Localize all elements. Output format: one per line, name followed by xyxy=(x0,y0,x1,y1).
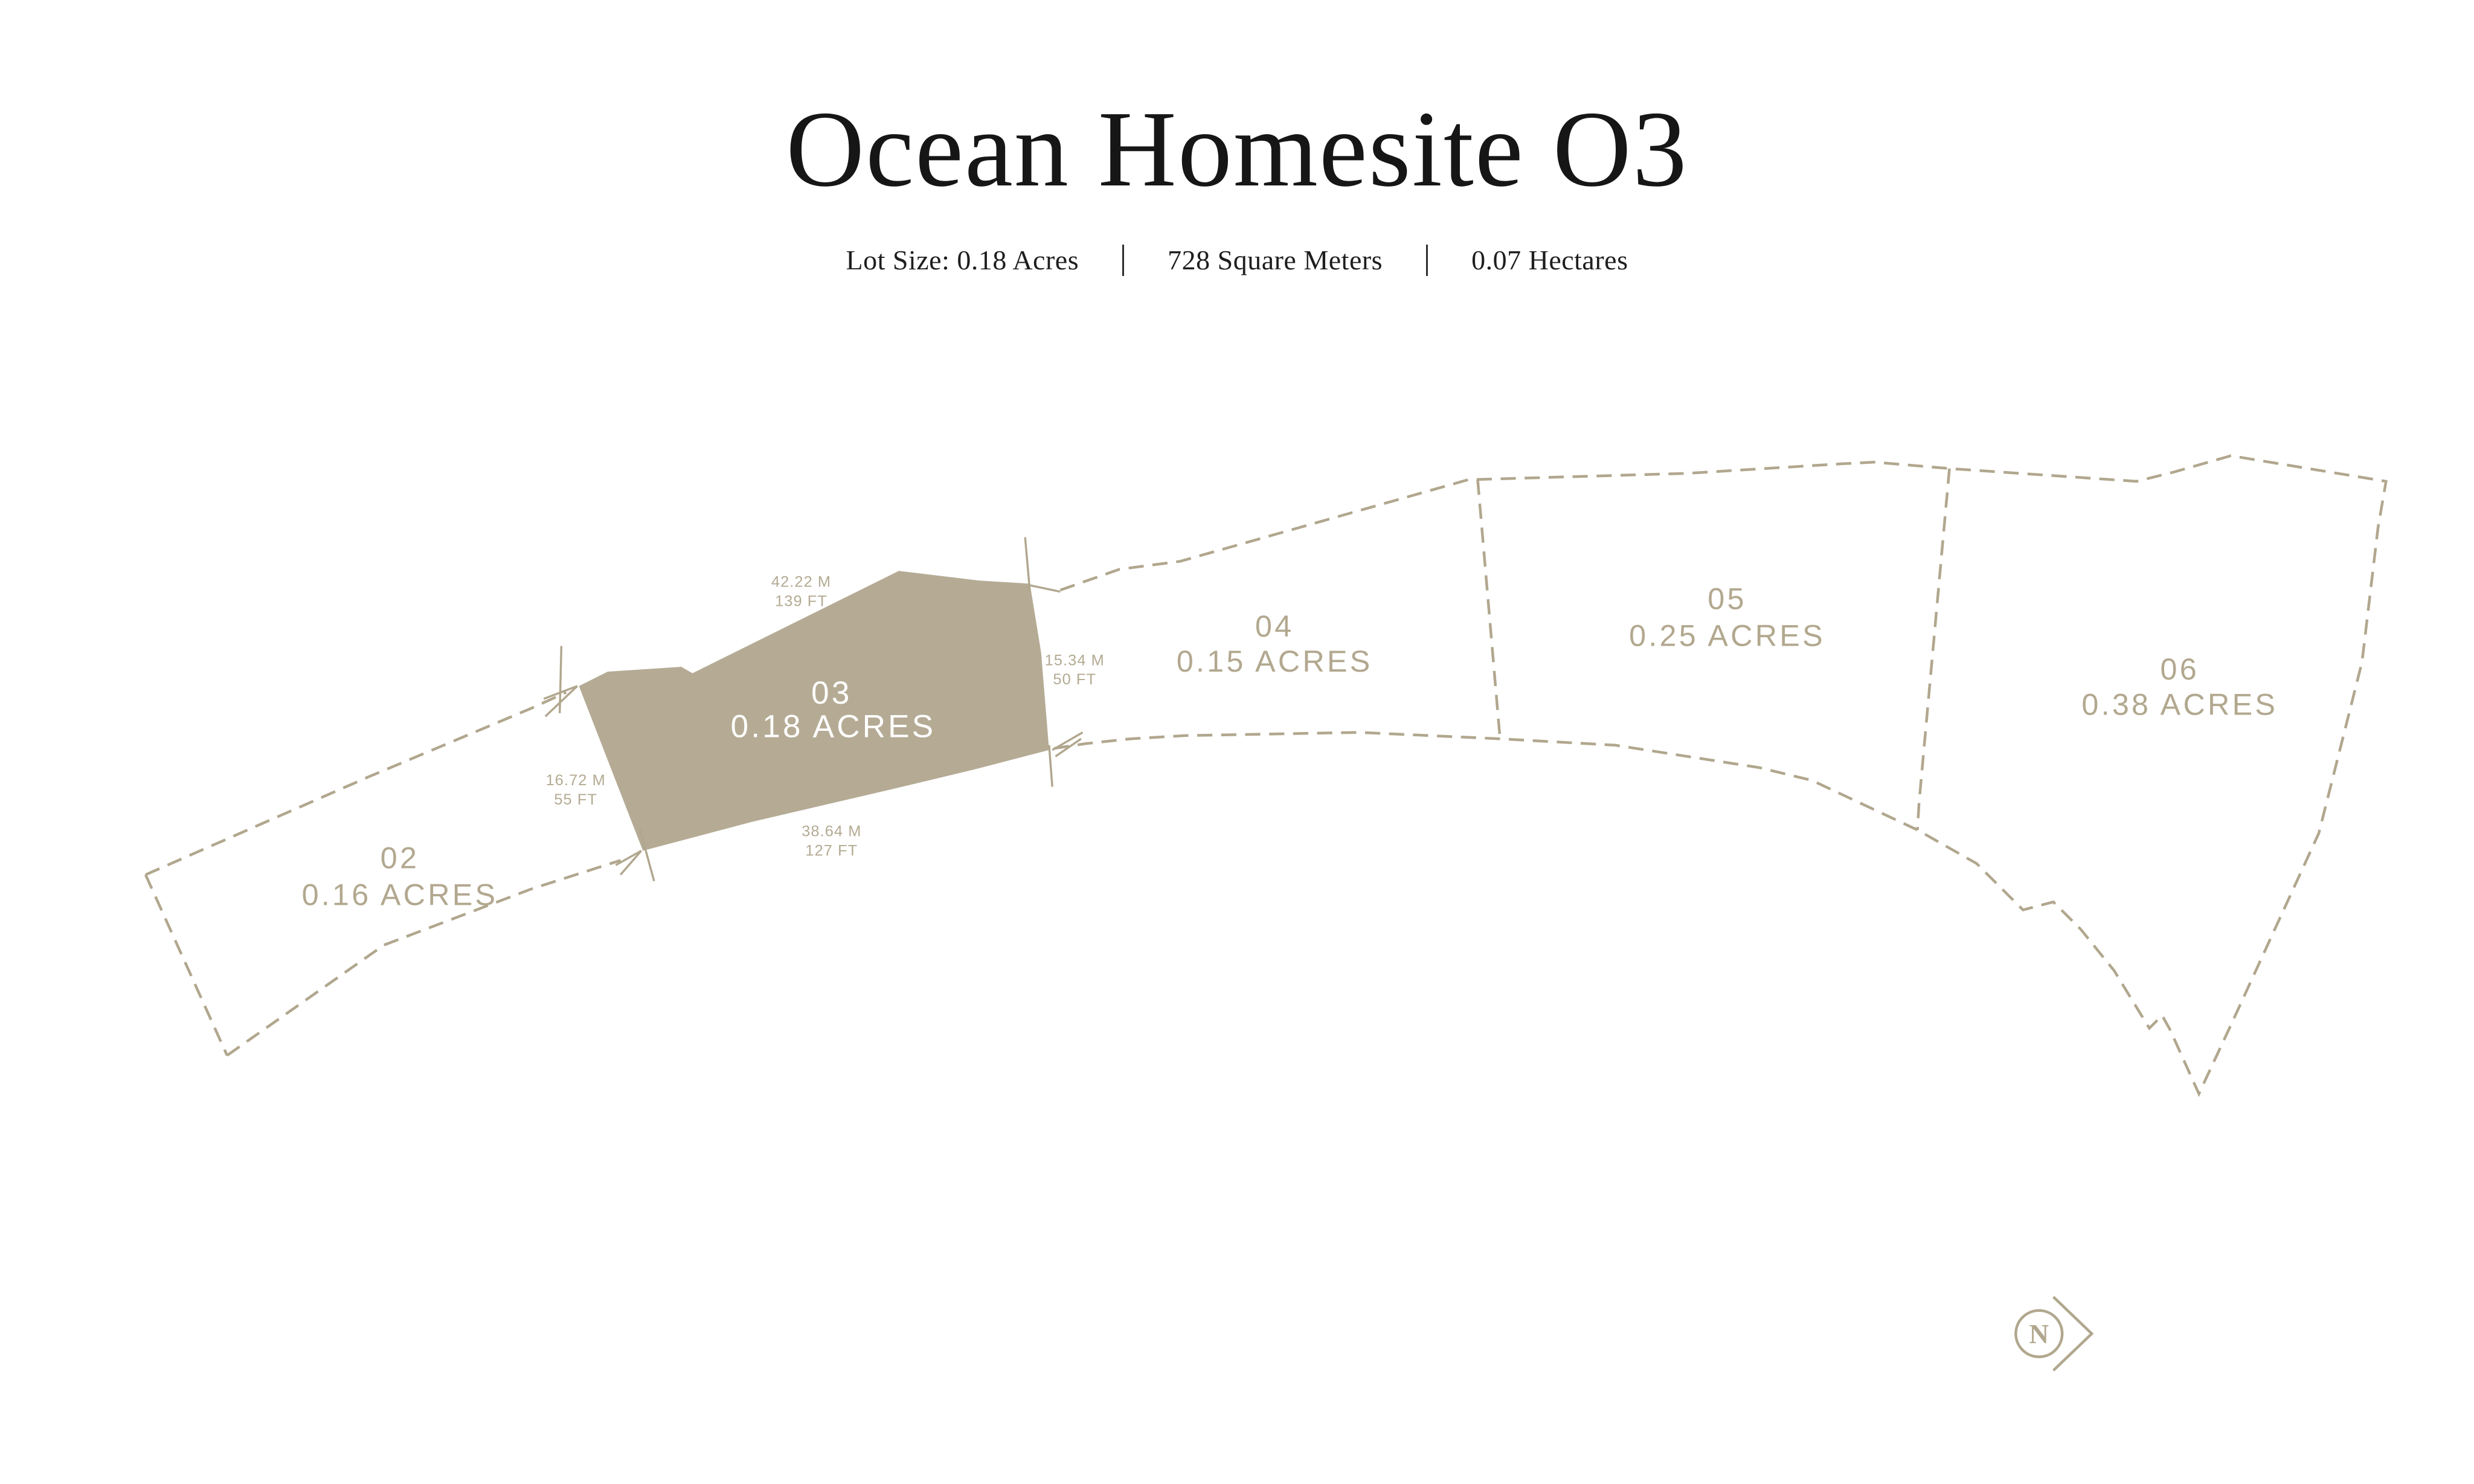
lot-area: 0.25 ACRES xyxy=(1629,618,1825,653)
measurement-metric: 38.64 M xyxy=(802,823,861,840)
lot-number: 03 xyxy=(811,675,852,711)
measurement-imperial: 50 FT xyxy=(1053,671,1096,688)
north-indicator: N xyxy=(2016,1297,2092,1370)
header: Ocean Homesite O3 Lot Size: 0.18 Acres 7… xyxy=(0,89,2474,276)
lot-number: 06 xyxy=(2161,652,2199,686)
stat-hectares: 0.07 Hectares xyxy=(1471,244,1628,276)
divider-04-05 xyxy=(1477,480,1500,739)
north-letter: N xyxy=(2029,1319,2049,1349)
lot-area: 0.15 ACRES xyxy=(1177,644,1373,678)
stat-acres: Lot Size: 0.18 Acres xyxy=(846,244,1079,276)
north-chevron-casing xyxy=(2054,1297,2092,1370)
stat-separator xyxy=(1122,245,1124,276)
measurement-imperial: 55 FT xyxy=(554,791,597,808)
measurement-left: 16.72 M 55 FT xyxy=(546,772,606,808)
page: Ocean Homesite O3 Lot Size: 0.18 Acres 7… xyxy=(0,0,2474,1484)
lot-04-label: 04 0.15 ACRES xyxy=(1177,609,1373,678)
lot-area: 0.16 ACRES xyxy=(302,878,498,912)
measurement-metric: 15.34 M xyxy=(1045,652,1105,669)
lot-number: 05 xyxy=(1708,582,1746,616)
lot-05-label: 05 0.25 ACRES xyxy=(1629,582,1825,653)
measurement-top: 42.22 M 139 FT xyxy=(771,574,831,610)
lot-area: 0.18 ACRES xyxy=(731,709,936,745)
divider-05-06 xyxy=(1918,469,1950,830)
lot-06-label: 06 0.38 ACRES xyxy=(2081,652,2278,721)
lot-number: 02 xyxy=(381,841,419,875)
stat-square-meters: 728 Square Meters xyxy=(1168,244,1383,276)
measurement-bottom: 38.64 M 127 FT xyxy=(802,823,861,859)
measurement-imperial: 127 FT xyxy=(805,842,858,859)
lot-stats: Lot Size: 0.18 Acres 728 Square Meters 0… xyxy=(0,244,2474,276)
stat-separator xyxy=(1426,245,1428,276)
lot-area: 0.38 ACRES xyxy=(2081,687,2278,721)
outer-boundary xyxy=(1054,456,2386,1094)
measurement-right: 15.34 M 50 FT xyxy=(1045,652,1105,688)
page-title: Ocean Homesite O3 xyxy=(0,89,2474,209)
lot-02-label: 02 0.16 ACRES xyxy=(302,841,498,912)
lot-number: 04 xyxy=(1255,609,1294,643)
measurement-metric: 16.72 M xyxy=(546,772,606,789)
measurement-metric: 42.22 M xyxy=(771,574,831,591)
measurement-imperial: 139 FT xyxy=(775,593,827,609)
